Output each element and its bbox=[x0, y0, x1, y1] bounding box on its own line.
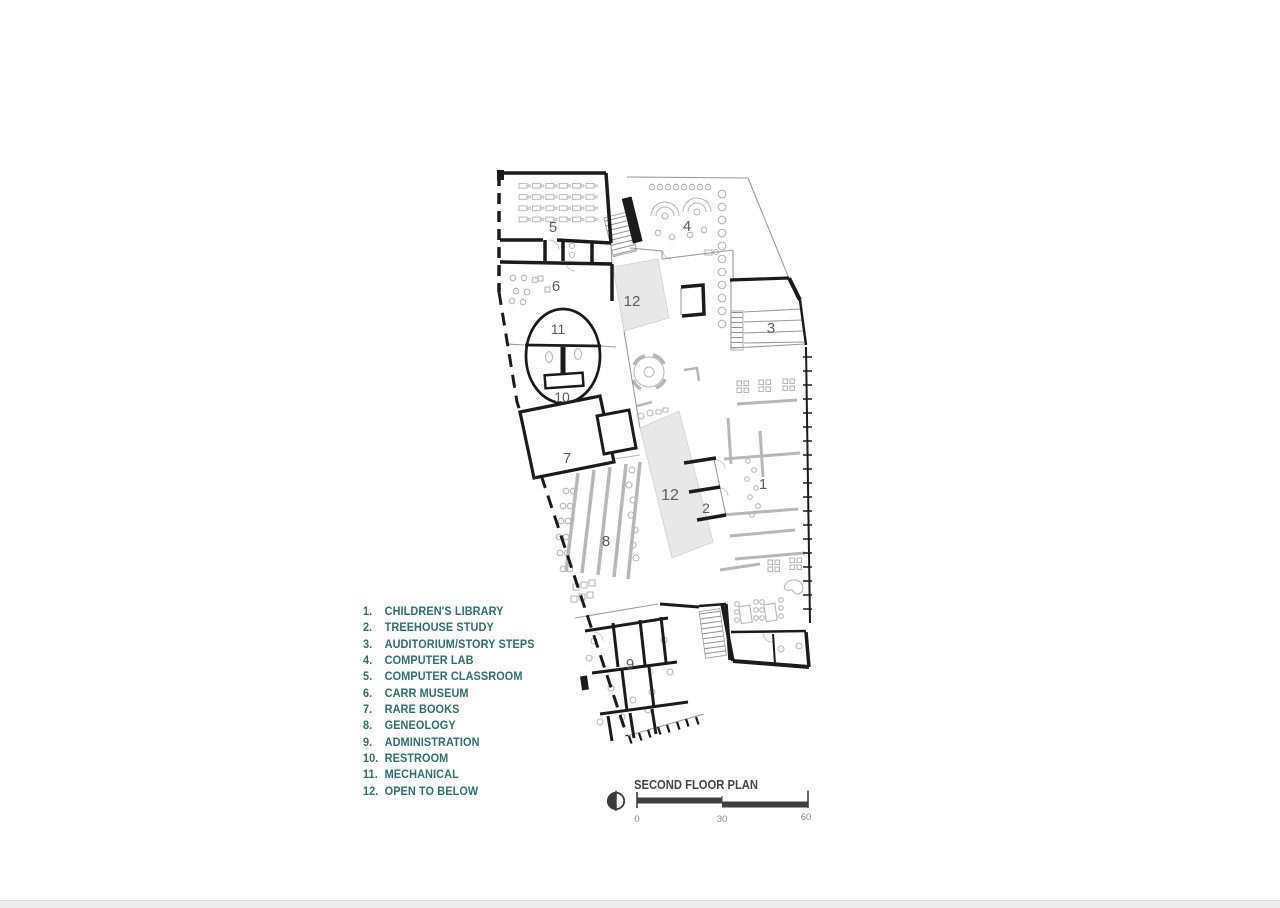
scale-labels: 0 30 60 bbox=[634, 812, 811, 825]
scale-tick-30: 30 bbox=[717, 814, 728, 825]
legend-item: 5.COMPUTER CLASSROOM bbox=[363, 669, 535, 685]
legend-item-label: RARE BOOKS bbox=[385, 702, 460, 718]
legend-item: 9.ADMINISTRATION bbox=[363, 735, 535, 751]
room-number-6: 6 bbox=[552, 278, 560, 295]
legend-item-label: CHILDREN'S LIBRARY bbox=[385, 604, 504, 620]
legend-item-label: RESTROOM bbox=[385, 751, 449, 767]
legend-item-number: 5. bbox=[363, 669, 385, 685]
legend-item: 2.TREEHOUSE STUDY bbox=[363, 620, 535, 636]
legend-item-label: GENEOLOGY bbox=[385, 718, 456, 734]
floor-plan-drawing: 5 6 11 10 12 4 3 7 8 12 2 1 9 SECOND FLO… bbox=[0, 0, 1280, 908]
legend-item-number: 12. bbox=[363, 784, 385, 800]
plan-title: SECOND FLOOR PLAN bbox=[634, 777, 758, 792]
room-number-9: 9 bbox=[626, 656, 634, 673]
drawing-sheet: 5 6 11 10 12 4 3 7 8 12 2 1 9 SECOND FLO… bbox=[0, 0, 1280, 908]
legend-item: 3.AUDITORIUM/STORY STEPS bbox=[363, 637, 535, 653]
legend-item-number: 2. bbox=[363, 620, 385, 636]
room-number-8: 8 bbox=[602, 533, 610, 550]
room-number-3: 3 bbox=[767, 320, 775, 337]
room-number-12-upper: 12 bbox=[624, 293, 641, 310]
legend-item: 1.CHILDREN'S LIBRARY bbox=[363, 604, 535, 620]
legend-item-label: COMPUTER CLASSROOM bbox=[385, 669, 523, 685]
legend-item: 4.COMPUTER LAB bbox=[363, 653, 535, 669]
legend-item-number: 10. bbox=[363, 751, 385, 767]
legend-item-label: MECHANICAL bbox=[385, 767, 459, 783]
legend-item-number: 3. bbox=[363, 637, 385, 653]
north-arrow-icon bbox=[608, 791, 624, 812]
legend-item: 10.RESTROOM bbox=[363, 751, 535, 767]
legend-item-number: 4. bbox=[363, 653, 385, 669]
legend-item: 8.GENEOLOGY bbox=[363, 718, 535, 734]
legend-item-label: COMPUTER LAB bbox=[385, 653, 474, 669]
legend-item-label: ADMINISTRATION bbox=[385, 735, 480, 751]
room-number-4: 4 bbox=[683, 218, 691, 235]
room-number-2: 2 bbox=[702, 500, 710, 516]
page-bottom-edge bbox=[0, 900, 1280, 908]
stair-bottom bbox=[699, 609, 726, 658]
legend-item-label: OPEN TO BELOW bbox=[385, 784, 479, 800]
legend-item-number: 9. bbox=[363, 735, 385, 751]
room-number-10: 10 bbox=[554, 389, 570, 405]
legend-item-label: AUDITORIUM/STORY STEPS bbox=[385, 637, 535, 653]
room-number-7: 7 bbox=[563, 450, 571, 467]
room-number-12-lower: 12 bbox=[661, 487, 679, 504]
scale-bar bbox=[637, 791, 808, 809]
legend-item: 11.MECHANICAL bbox=[363, 767, 535, 783]
room-number-5: 5 bbox=[549, 219, 557, 236]
legend-item-number: 11. bbox=[363, 767, 385, 783]
legend-item-number: 8. bbox=[363, 718, 385, 734]
legend-item: 12.OPEN TO BELOW bbox=[363, 784, 535, 800]
scale-tick-0: 0 bbox=[634, 814, 639, 825]
room-legend: 1.CHILDREN'S LIBRARY 2.TREEHOUSE STUDY 3… bbox=[363, 604, 535, 800]
legend-item-label: TREEHOUSE STUDY bbox=[385, 620, 494, 636]
stair-auditorium bbox=[731, 311, 743, 350]
legend-item-number: 6. bbox=[363, 686, 385, 702]
scale-tick-60: 60 bbox=[801, 812, 812, 823]
legend-item-label: CARR MUSEUM bbox=[385, 686, 469, 702]
title-block: SECOND FLOOR PLAN 0 30 60 bbox=[608, 777, 811, 825]
legend-item: 7.RARE BOOKS bbox=[363, 702, 535, 718]
legend-item-number: 1. bbox=[363, 604, 385, 620]
room-number-11: 11 bbox=[551, 321, 566, 337]
room-number-1: 1 bbox=[759, 476, 767, 493]
legend-item: 6.CARR MUSEUM bbox=[363, 686, 535, 702]
legend-item-number: 7. bbox=[363, 702, 385, 718]
